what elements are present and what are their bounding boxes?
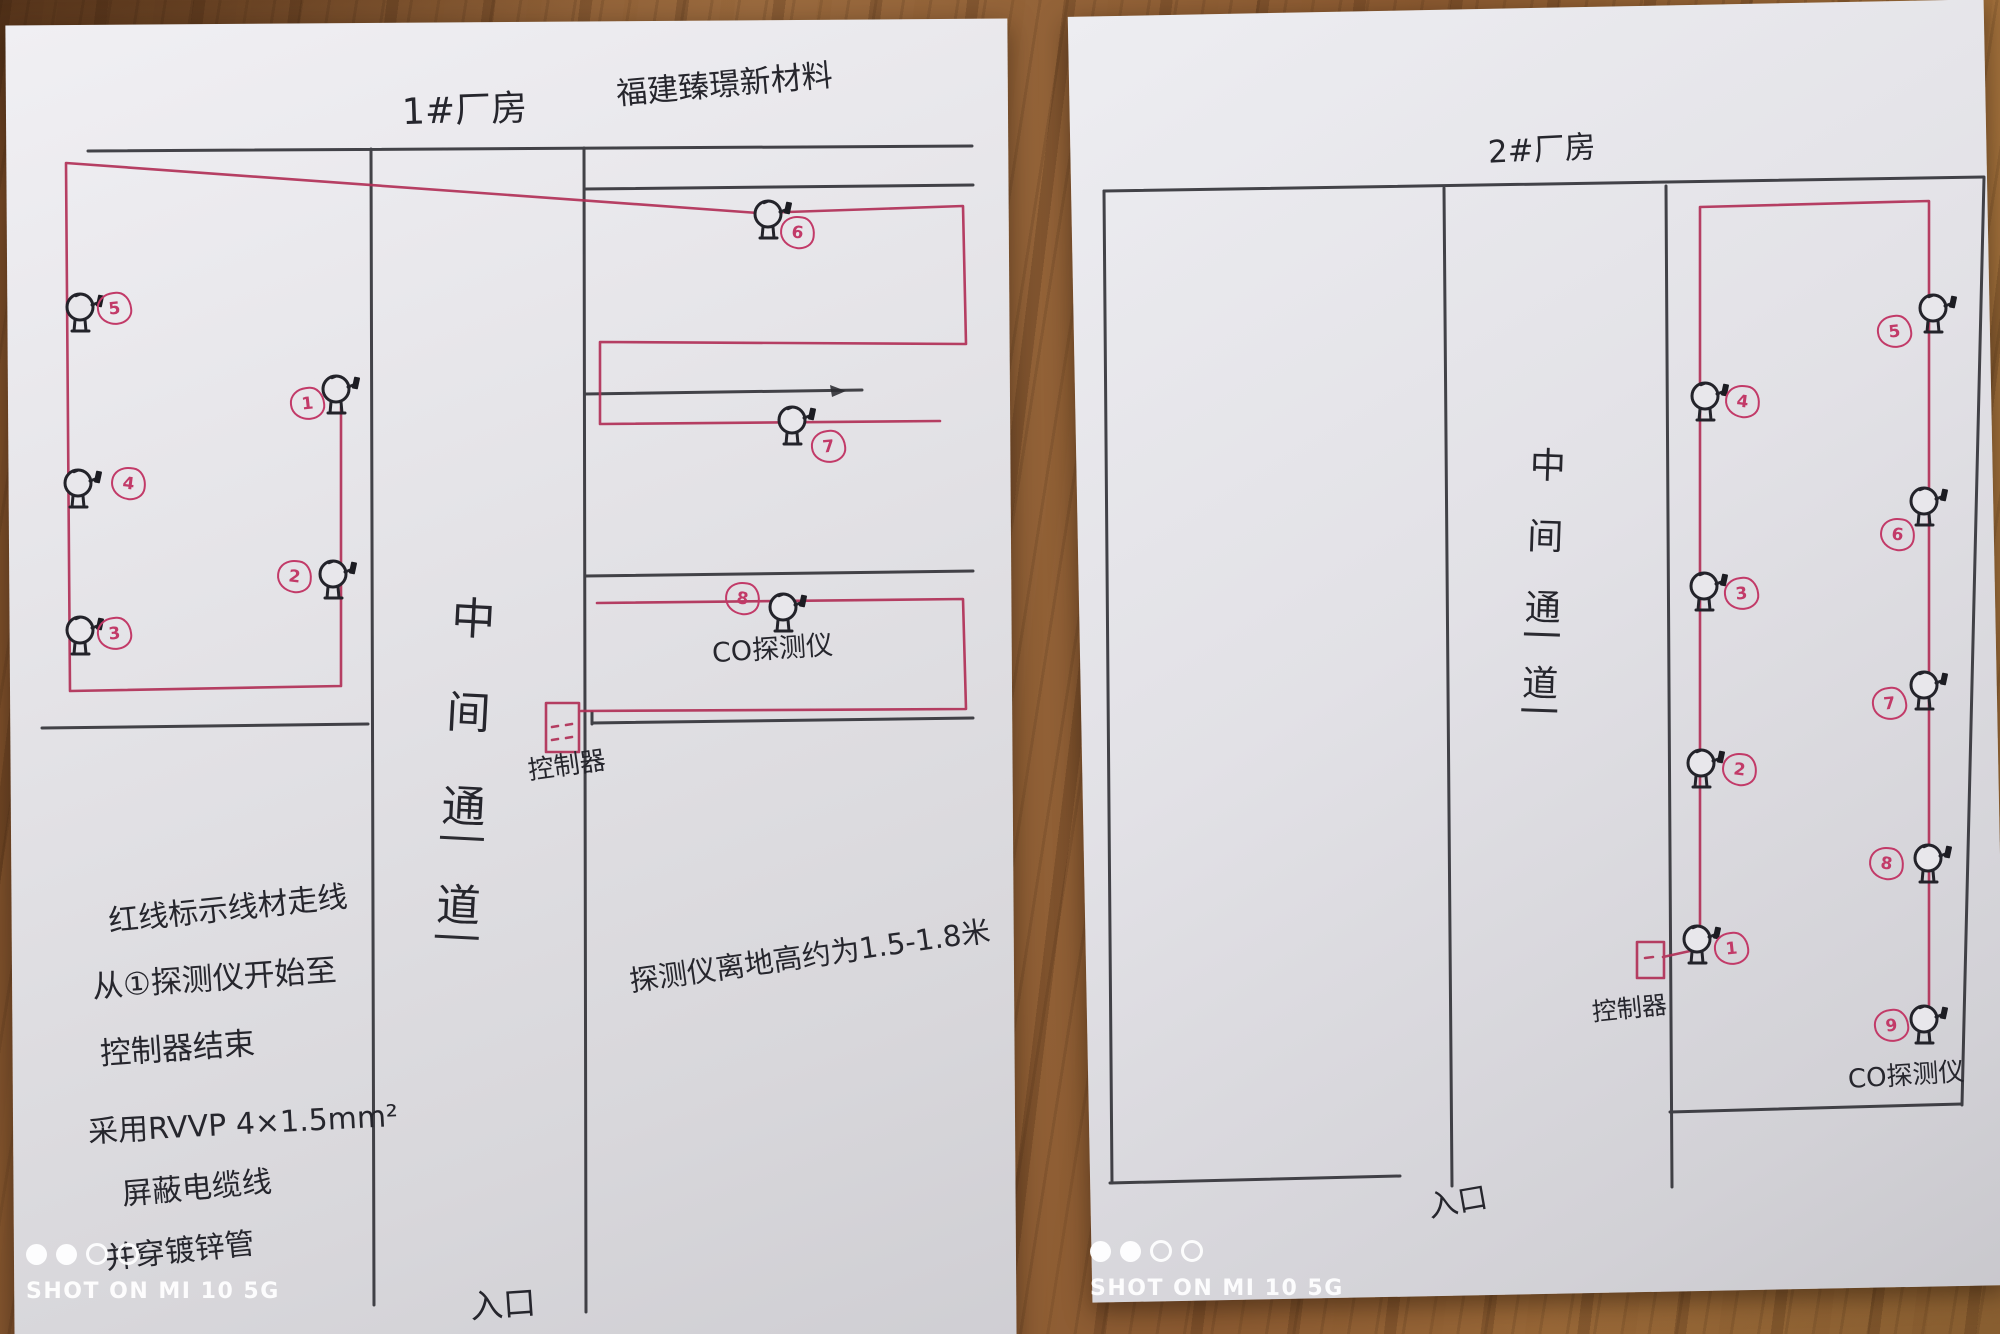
watermark-text: SHOT ON MI 10 5G (1090, 1276, 1344, 1301)
watermark-text: SHOT ON MI 10 5G (26, 1279, 280, 1304)
camera-watermark-right: SHOT ON MI 10 5G (1090, 1240, 1344, 1301)
building2-title: 2#厂房 (1487, 130, 1596, 171)
dot-filled (26, 1244, 47, 1265)
corridor-char: 间 (445, 676, 492, 742)
dot-hollow (117, 1243, 139, 1265)
corridor-char: 道 (435, 869, 483, 940)
co-detector-symbol (1687, 380, 1731, 430)
dot-hollow (86, 1243, 108, 1265)
dot-filled (56, 1244, 77, 1265)
co-detector-symbol (1906, 1003, 1950, 1053)
co-detector-symbol (1683, 747, 1727, 797)
corridor-char: 通 (1524, 578, 1562, 636)
dot-filled (1090, 1241, 1111, 1262)
corridor-char: 中 (450, 582, 497, 648)
building1-title: 1#厂房 (401, 88, 527, 134)
co-detector-symbol (60, 467, 104, 517)
co-detector-symbol (315, 558, 359, 608)
corridor-char: 道 (1521, 654, 1559, 712)
dot-filled (1120, 1241, 1141, 1262)
camera-watermark-left: SHOT ON MI 10 5G (26, 1243, 280, 1304)
corridor-char: 间 (1527, 507, 1565, 560)
co-detector-symbol (318, 373, 362, 423)
entrance-label-building1: 入口 (469, 1284, 537, 1326)
co-detector-symbol (1915, 292, 1959, 342)
dot-hollow (1181, 1240, 1203, 1262)
watermark-dots (26, 1243, 280, 1265)
co-detector-symbol (1910, 842, 1954, 892)
corridor-char: 通 (440, 770, 488, 841)
dot-hollow (1150, 1240, 1172, 1262)
corridor-char: 中 (1529, 436, 1567, 489)
co-detector-symbol (1906, 669, 1950, 719)
watermark-dots (1090, 1240, 1344, 1262)
photo-of-hand-drawn-floor-plans: 1 2 3 4 5 6 7 (0, 0, 2000, 1334)
